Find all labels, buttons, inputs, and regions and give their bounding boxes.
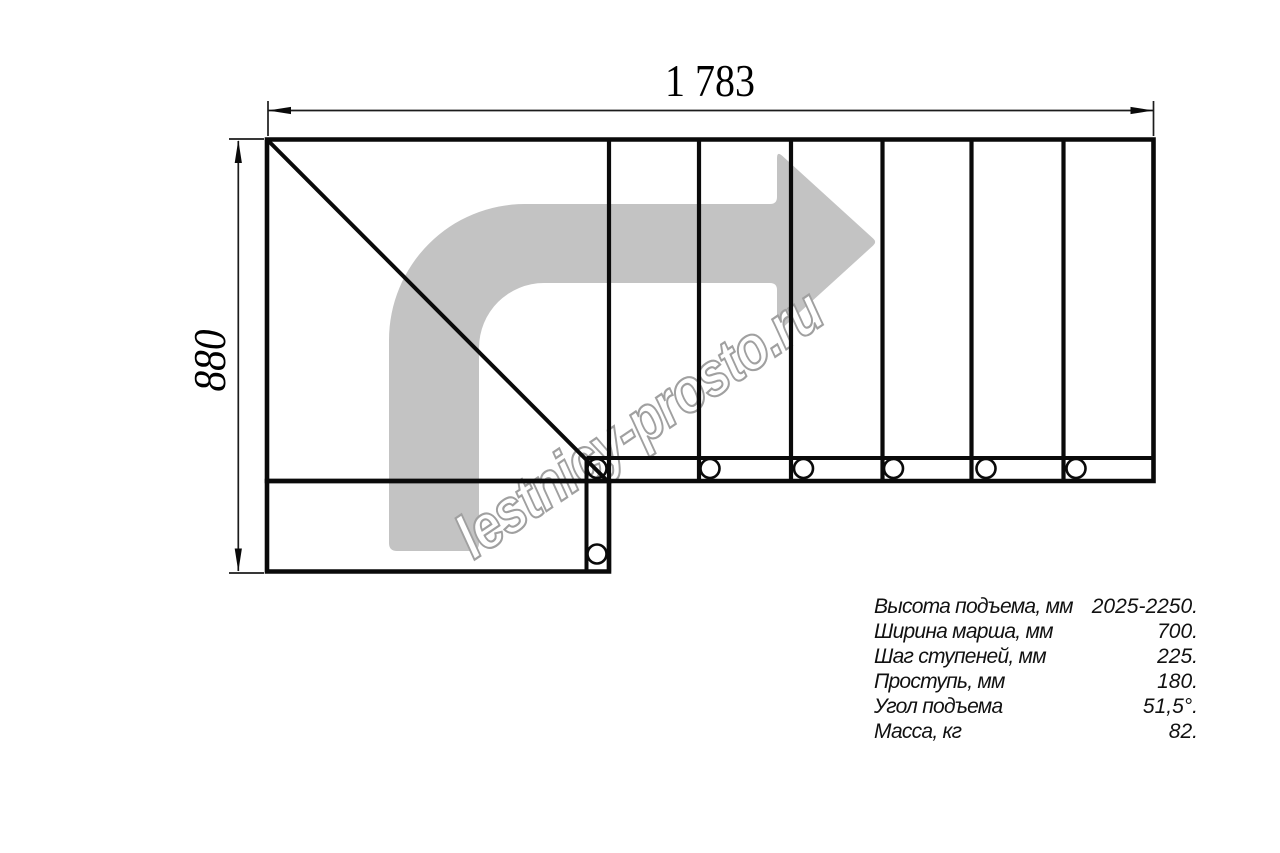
svg-text:1 783: 1 783	[665, 55, 755, 106]
svg-text:880: 880	[184, 330, 235, 392]
svg-text:lestnicy-prosto.ru: lestnicy-prosto.ru	[443, 276, 836, 572]
